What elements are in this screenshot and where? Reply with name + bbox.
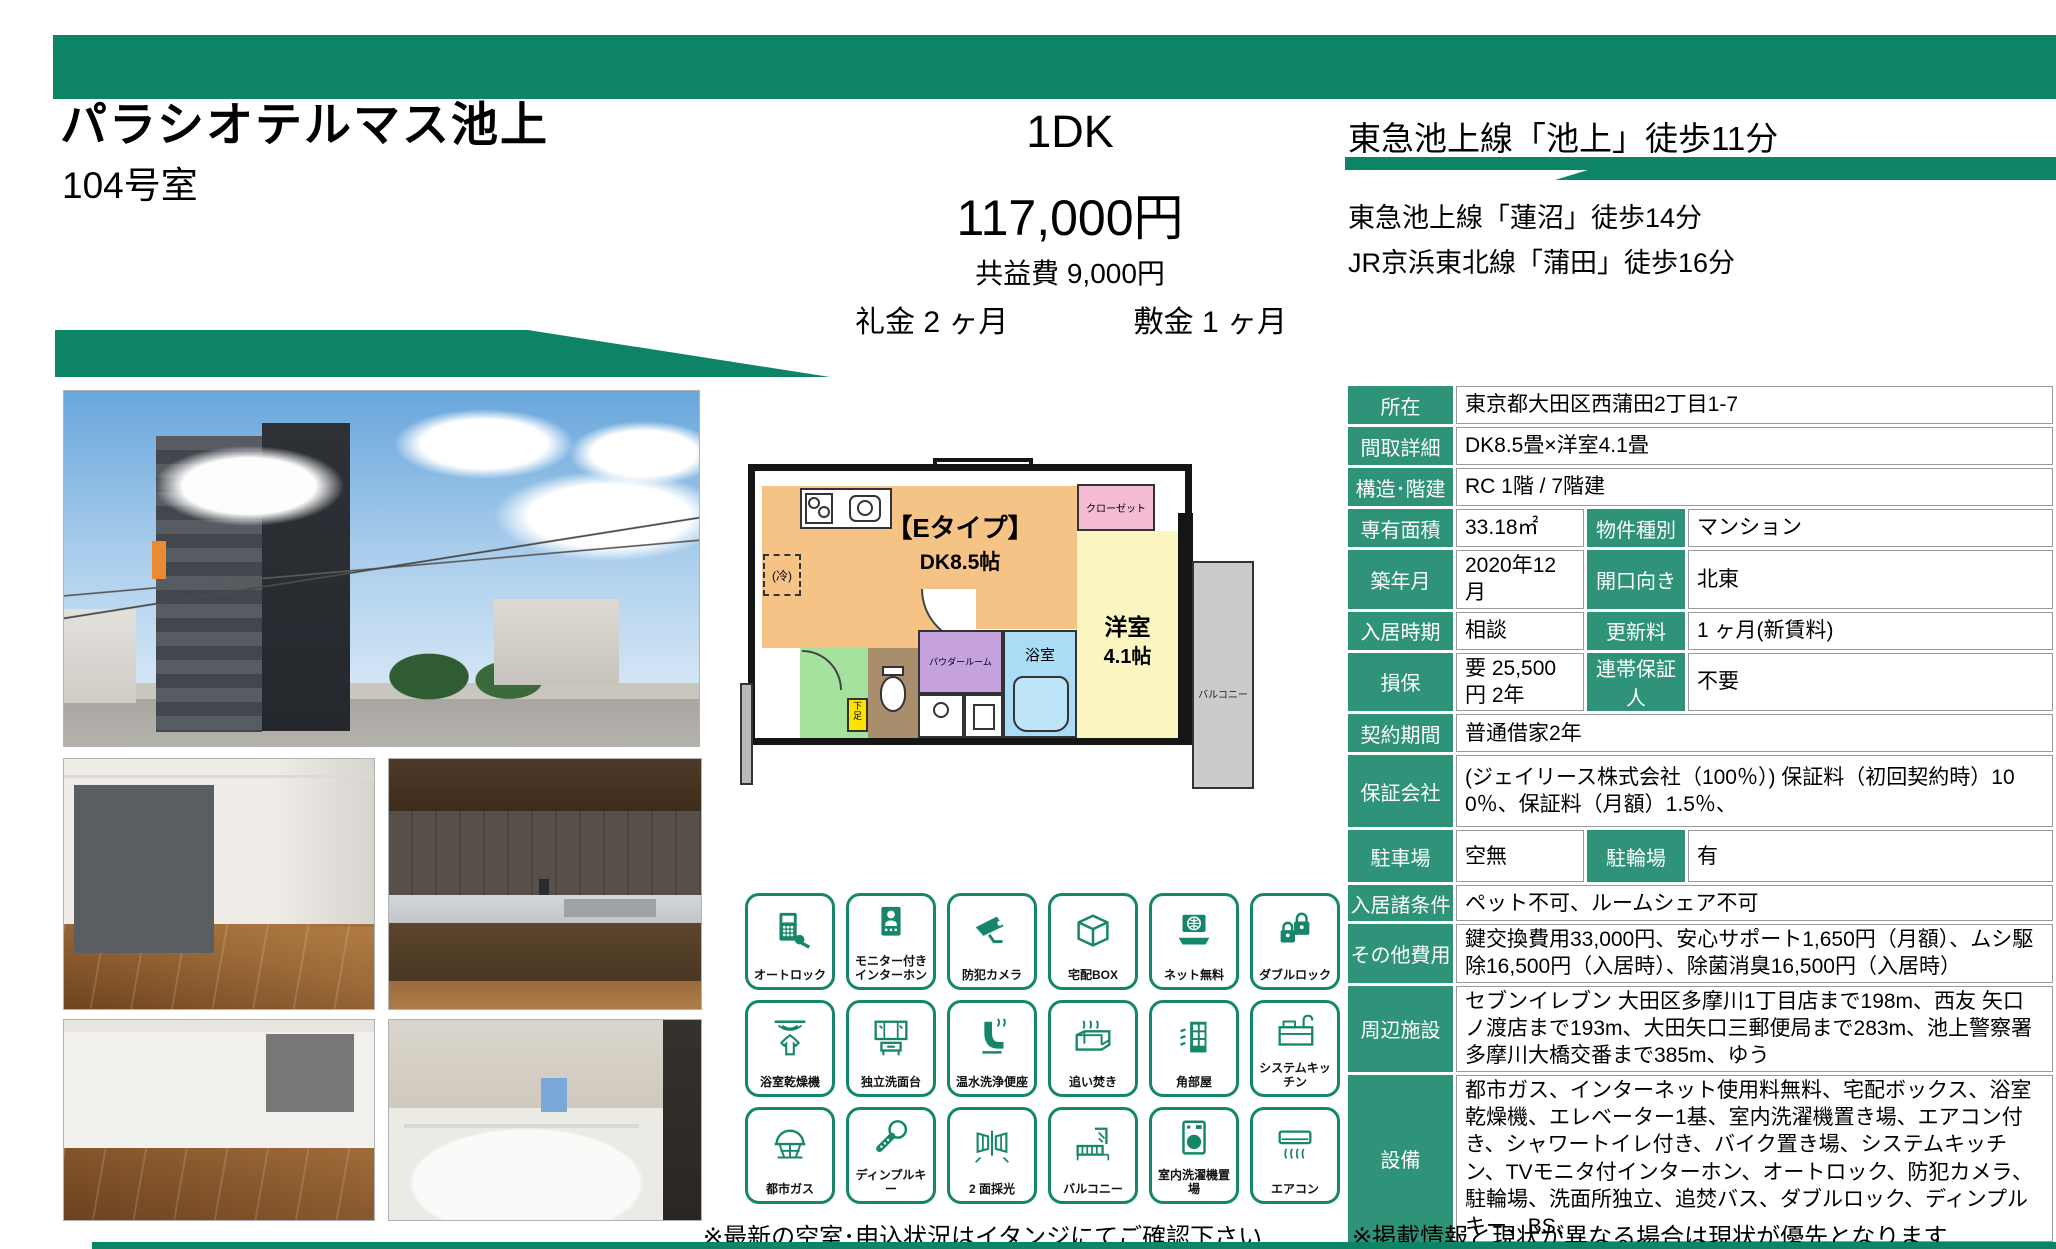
row-label2: 開口向き	[1587, 550, 1685, 609]
floor-plan-bathtub	[1013, 676, 1069, 732]
security-camera-icon	[969, 909, 1015, 955]
feature-bathroom-dryer: 浴室乾燥機	[745, 1000, 835, 1097]
row-label2: 連帯保証人	[1587, 653, 1685, 712]
feature-label: 温水洗浄便座	[954, 1076, 1030, 1089]
feature-label: エアコン	[1269, 1183, 1321, 1196]
row-value: 33.18㎡	[1456, 509, 1584, 547]
row-label: 入居時期	[1348, 612, 1453, 650]
floor-plan-shoe-box: 下足	[847, 698, 868, 732]
deposit: 敷金 1 ヶ月	[1134, 297, 1287, 341]
rent-amount: 117,000円	[830, 178, 1310, 250]
floor-plan-closet: クローゼット	[1077, 484, 1155, 531]
row-value2: マンション	[1688, 509, 2053, 547]
row-label: 損保	[1348, 653, 1453, 712]
table-row: 入居諸条件 ペット不可、ルームシェア不可	[1348, 885, 2053, 921]
feature-washlet: 温水洗浄便座	[947, 1000, 1037, 1097]
feature-corner-room: 角部屋	[1149, 1000, 1239, 1097]
toilet-bowl	[880, 676, 906, 712]
feature-label: ディンプルキー	[849, 1169, 933, 1196]
access-secondary-2: JR京浜東北線「蒲田」徒歩16分	[1348, 241, 1735, 280]
feature-grid: オートロック モニター付きインターホン 防犯カメラ 宅配B	[745, 893, 1345, 1204]
row-value: 鍵交換費用33,000円、安心サポート1,650円（月額）、ムシ駆除16,500…	[1456, 924, 2053, 983]
feature-delivery-box: 宅配BOX	[1048, 893, 1138, 990]
table-row: 損保 要 25,500円 2年 連帯保証人 不要	[1348, 653, 2053, 712]
initial-fees-row: 礼金 2 ヶ月 敷金 1 ヶ月	[855, 297, 1287, 341]
row-value: DK8.5畳×洋室4.1畳	[1456, 427, 2053, 465]
bottom-green-bar	[92, 1242, 2056, 1249]
toilet-tank	[882, 666, 904, 676]
row-label: 周辺施設	[1348, 986, 1453, 1072]
row-value: (ジェイリース株式会社（100％）) 保証料（初回契約時）100％、保証料（月額…	[1456, 755, 2053, 827]
floor-plan-right-wall	[1178, 513, 1193, 745]
feature-label: 2 面採光	[967, 1183, 1017, 1196]
access-primary: 東急池上線「池上」徒歩11分	[1348, 112, 1778, 160]
row-label: 入居諸条件	[1348, 885, 1453, 921]
table-row: その他費用 鍵交換費用33,000円、安心サポート1,650円（月額）、ムシ駆除…	[1348, 924, 2053, 983]
feature-balcony: バルコニー	[1048, 1107, 1138, 1204]
building-name: パラシオテルマス池上	[60, 100, 549, 149]
row-value: セブンイレブン 大田区多摩川1丁目店まで198m、西友 矢口ノ渡店まで193m、…	[1456, 986, 2053, 1072]
feature-label: ダブルロック	[1257, 969, 1333, 982]
row-label2: 物件種別	[1587, 509, 1685, 547]
photo-kitchen	[388, 758, 702, 1010]
feature-label: 浴室乾燥機	[758, 1076, 822, 1089]
row-label2: 駐輪場	[1587, 830, 1685, 882]
feature-label: システムキッチン	[1253, 1062, 1337, 1089]
floor-plan-washbasin	[918, 694, 964, 738]
photo-building-exterior	[63, 390, 700, 747]
row-label: 築年月	[1348, 550, 1453, 609]
row-label: 駐車場	[1348, 830, 1453, 882]
access-underline-bar	[1345, 157, 2056, 170]
table-row: 所在 東京都大田区西蒲田2丁目1-7	[1348, 386, 2053, 424]
double-lock-icon	[1272, 909, 1318, 955]
row-value2: 1 ヶ月(新賃料)	[1688, 612, 2053, 650]
floor-plan-left-porch	[740, 683, 753, 785]
property-flyer: パラシオテルマス池上 104号室 1DK 117,000円 共益費 9,000円…	[0, 0, 2056, 1249]
row-label: 間取詳細	[1348, 427, 1453, 465]
common-service-fee: 共益費 9,000円	[830, 252, 1310, 292]
row-value2: 有	[1688, 830, 2053, 882]
floor-plan-fridge-space: (冷)	[763, 554, 801, 596]
floor-plan-bathroom-label: 浴室	[1005, 644, 1075, 665]
feature-label: 都市ガス	[764, 1183, 816, 1196]
row-value: 要 25,500円 2年	[1456, 653, 1584, 712]
feature-monitor-intercom: モニター付きインターホン	[846, 893, 936, 990]
row-value: 2020年12月	[1456, 550, 1584, 609]
indoor-washer-icon	[1171, 1117, 1217, 1163]
feature-label: オートロック	[752, 969, 828, 982]
property-detail-table: 所在 東京都大田区西蒲田2丁目1-7 間取詳細 DK8.5畳×洋室4.1畳 構造…	[1345, 383, 2056, 1249]
floor-plan-western-room-label: 洋室	[1077, 608, 1178, 642]
vanity-icon	[868, 1016, 914, 1062]
row-label: 専有面積	[1348, 509, 1453, 547]
table-row: 間取詳細 DK8.5畳×洋室4.1畳	[1348, 427, 2053, 465]
feature-reheating-bath: 追い焚き	[1048, 1000, 1138, 1097]
feature-label: 追い焚き	[1067, 1076, 1119, 1089]
top-green-bar	[53, 35, 2056, 99]
floor-plan-balcony-label: バルコニー	[1194, 686, 1252, 701]
feature-label: 防犯カメラ	[960, 969, 1024, 982]
feature-system-kitchen: システムキッチン	[1250, 1000, 1340, 1097]
corner-room-icon	[1171, 1016, 1217, 1062]
feature-label: モニター付きインターホン	[849, 955, 933, 982]
row-value: 相談	[1456, 612, 1584, 650]
row-value: RC 1階 / 7階建	[1456, 468, 2053, 506]
table-row: 駐車場 空無 駐輪場 有	[1348, 830, 2053, 882]
feature-indoor-washer: 室内洗濯機置場	[1149, 1107, 1239, 1204]
feature-free-internet: ネット無料	[1149, 893, 1239, 990]
feature-dimple-key: ディンプルキー	[846, 1107, 936, 1204]
access-secondary-1: 東急池上線「蓮沼」徒歩14分	[1348, 196, 1702, 235]
row-label: その他費用	[1348, 924, 1453, 983]
row-label2: 更新料	[1587, 612, 1685, 650]
bathroom-dryer-icon	[767, 1016, 813, 1062]
table-row: 入居時期 相談 更新料 1 ヶ月(新賃料)	[1348, 612, 2053, 650]
autolock-icon	[767, 909, 813, 955]
table-row: 保証会社 (ジェイリース株式会社（100％）) 保証料（初回契約時）100％、保…	[1348, 755, 2053, 827]
table-row: 築年月 2020年12月 開口向き 北東	[1348, 550, 2053, 609]
floor-plan-washer-space	[964, 694, 1003, 738]
table-row: 契約期間 普通借家2年	[1348, 714, 2053, 752]
photo-living-room	[63, 758, 375, 1010]
aircon-icon	[1272, 1123, 1318, 1169]
two-side-lighting-icon	[969, 1123, 1015, 1169]
table-row: 構造･階建 RC 1階 / 7階建	[1348, 468, 2053, 506]
floor-plan-western-room-size: 4.1帖	[1077, 640, 1178, 669]
feature-double-lock: ダブルロック	[1250, 893, 1340, 990]
layout-type: 1DK	[830, 106, 1310, 158]
table-row: 専有面積 33.18㎡ 物件種別 マンション	[1348, 509, 2053, 547]
feature-vanity: 独立洗面台	[846, 1000, 936, 1097]
row-label: 所在	[1348, 386, 1453, 424]
feature-two-side-lighting: 2 面採光	[947, 1107, 1037, 1204]
city-gas-icon	[767, 1123, 813, 1169]
row-value: 東京都大田区西蒲田2丁目1-7	[1456, 386, 2053, 424]
feature-label: 宅配BOX	[1066, 969, 1120, 982]
row-label: 保証会社	[1348, 755, 1453, 827]
row-value2: 不要	[1688, 653, 2053, 712]
floor-plan-balcony: バルコニー	[1192, 561, 1254, 789]
feature-label: 室内洗濯機置場	[1152, 1169, 1236, 1196]
floor-plan-powder-room: パウダールーム	[918, 630, 1003, 694]
feature-label: 独立洗面台	[859, 1076, 923, 1089]
section-divider-bar	[55, 330, 830, 377]
reheating-bath-icon	[1070, 1016, 1116, 1062]
monitor-intercom-icon	[868, 903, 914, 949]
room-number: 104号室	[62, 155, 198, 209]
feature-label: バルコニー	[1061, 1183, 1125, 1196]
key-money: 礼金 2 ヶ月	[855, 297, 1008, 341]
balcony-icon	[1070, 1123, 1116, 1169]
floor-plan-type-label: 【Eタイプ】	[845, 508, 1075, 545]
dimple-key-icon	[868, 1117, 914, 1163]
floor-plan-dk-size: DK8.5帖	[845, 546, 1075, 576]
row-value: 普通借家2年	[1456, 714, 2053, 752]
feature-city-gas: 都市ガス	[745, 1107, 835, 1204]
feature-label: ネット無料	[1162, 969, 1226, 982]
washlet-icon	[969, 1016, 1015, 1062]
access-underline-bar-step	[1555, 169, 2056, 180]
floor-plan-bathroom: 浴室	[1003, 630, 1077, 738]
feature-security-camera: 防犯カメラ	[947, 893, 1037, 990]
table-row: 周辺施設 セブンイレブン 大田区多摩川1丁目店まで198m、西友 矢口ノ渡店まで…	[1348, 986, 2053, 1072]
feature-label: 角部屋	[1174, 1076, 1214, 1089]
washer-box	[973, 704, 995, 730]
floor-plan-toilet-room	[868, 648, 918, 738]
feature-autolock: オートロック	[745, 893, 835, 990]
row-label: 構造･階建	[1348, 468, 1453, 506]
system-kitchen-icon	[1272, 1010, 1318, 1056]
photo-bedroom	[63, 1019, 375, 1221]
row-value: 空無	[1456, 830, 1584, 882]
floor-plan: (冷) 【Eタイプ】 DK8.5帖 クローゼット 洋室 4.1帖 浴室 パウダー…	[740, 458, 1340, 880]
row-value2: 北東	[1688, 550, 2053, 609]
photo-bathroom	[388, 1019, 702, 1221]
feature-aircon: エアコン	[1250, 1107, 1340, 1204]
row-label: 契約期間	[1348, 714, 1453, 752]
free-internet-icon	[1171, 909, 1217, 955]
washbasin-bowl	[933, 702, 949, 718]
row-value: ペット不可、ルームシェア不可	[1456, 885, 2053, 921]
delivery-box-icon	[1070, 909, 1116, 955]
